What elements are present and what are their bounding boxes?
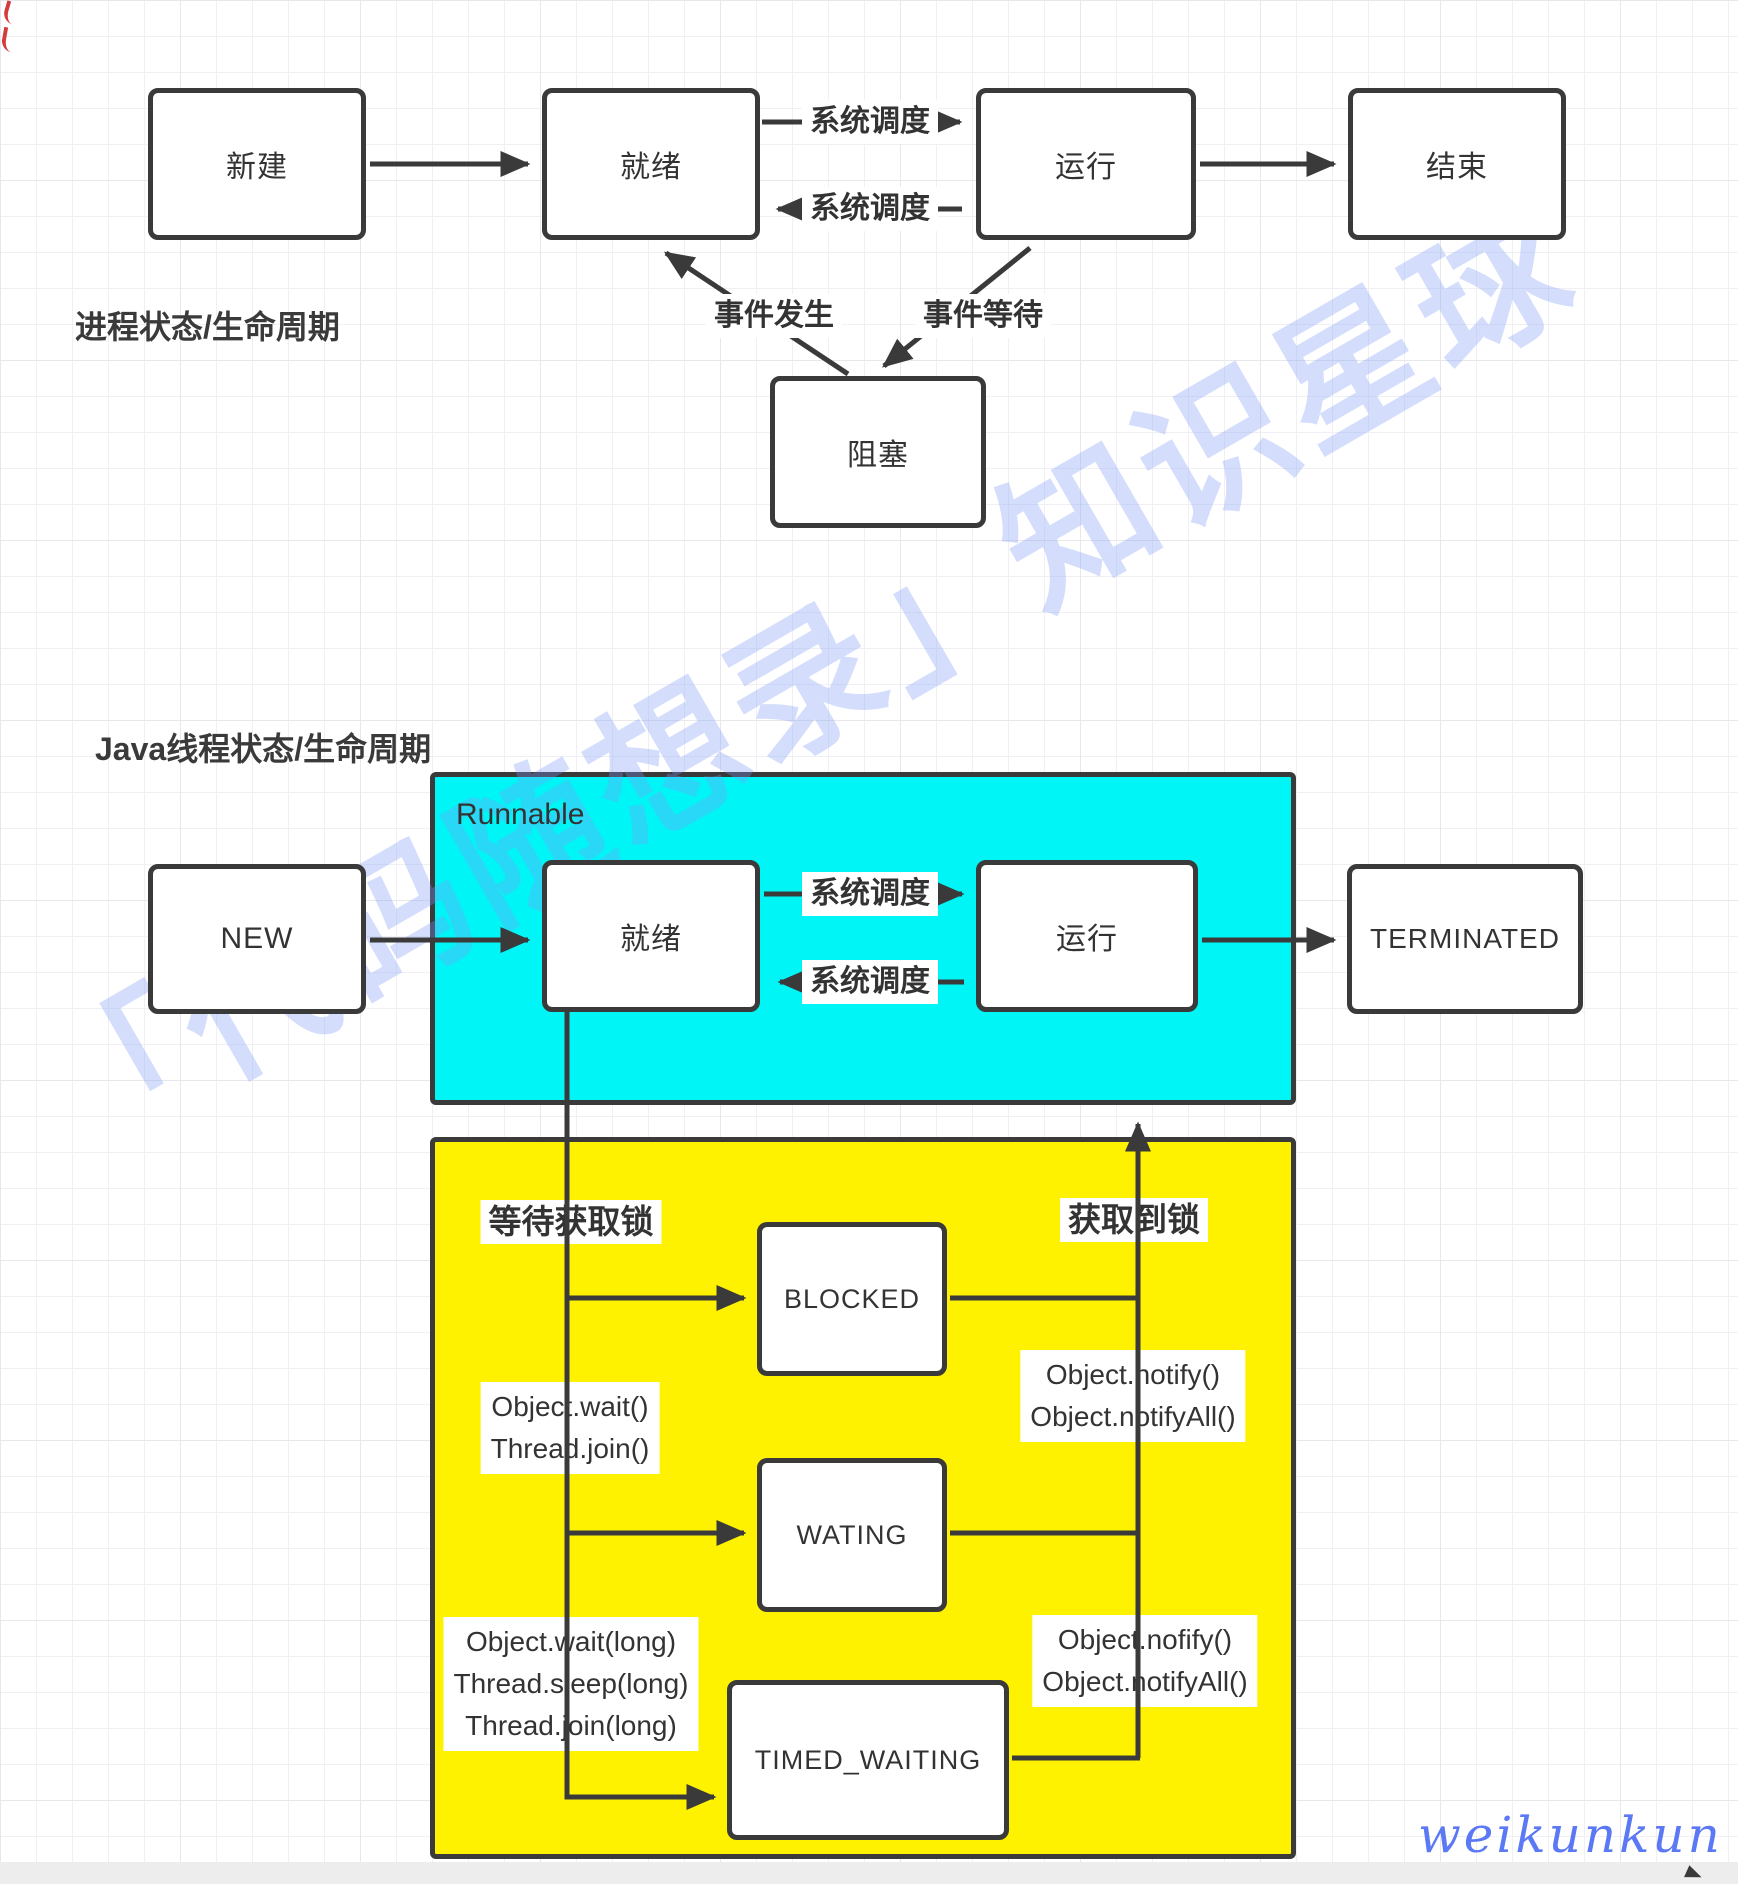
- label-dispatch-bottom: 系统调度: [802, 187, 938, 231]
- label-java-dispatch-bottom: 系统调度: [802, 960, 938, 1004]
- edge-ready-to-timedwaiting: [567, 1012, 714, 1797]
- label-java-dispatch-top: 系统调度: [802, 872, 938, 916]
- runnable-group-label: Runnable: [456, 798, 584, 832]
- node-ready: 就绪: [542, 88, 760, 240]
- node-create: 新建: [148, 88, 366, 240]
- node-java-running: 运行: [976, 860, 1198, 1012]
- node-running: 运行: [976, 88, 1196, 240]
- node-java-blocked: BLOCKED: [757, 1222, 947, 1376]
- process-section-title: 进程状态/生命周期: [75, 302, 340, 348]
- label-event-occur: 事件发生: [706, 294, 842, 338]
- node-java-ready: 就绪: [542, 860, 760, 1012]
- node-blocked: 阻塞: [770, 376, 986, 528]
- node-java-new: NEW: [148, 864, 366, 1014]
- node-java-timed-waiting: TIMED_WAITING: [727, 1680, 1009, 1840]
- node-java-waiting: WATING: [757, 1458, 947, 1612]
- node-java-terminated: TERMINATED: [1347, 864, 1583, 1014]
- label-dispatch-top: 系统调度: [802, 100, 938, 144]
- diagram-canvas: { "process": { "title": "进程状态/生命周期", "no…: [0, 0, 1738, 1884]
- java-section-title: Java线程状态/生命周期: [95, 724, 431, 770]
- label-event-wait: 事件等待: [915, 294, 1051, 338]
- node-end: 结束: [1348, 88, 1566, 240]
- watermark-signature: weikunkun: [1418, 1806, 1723, 1864]
